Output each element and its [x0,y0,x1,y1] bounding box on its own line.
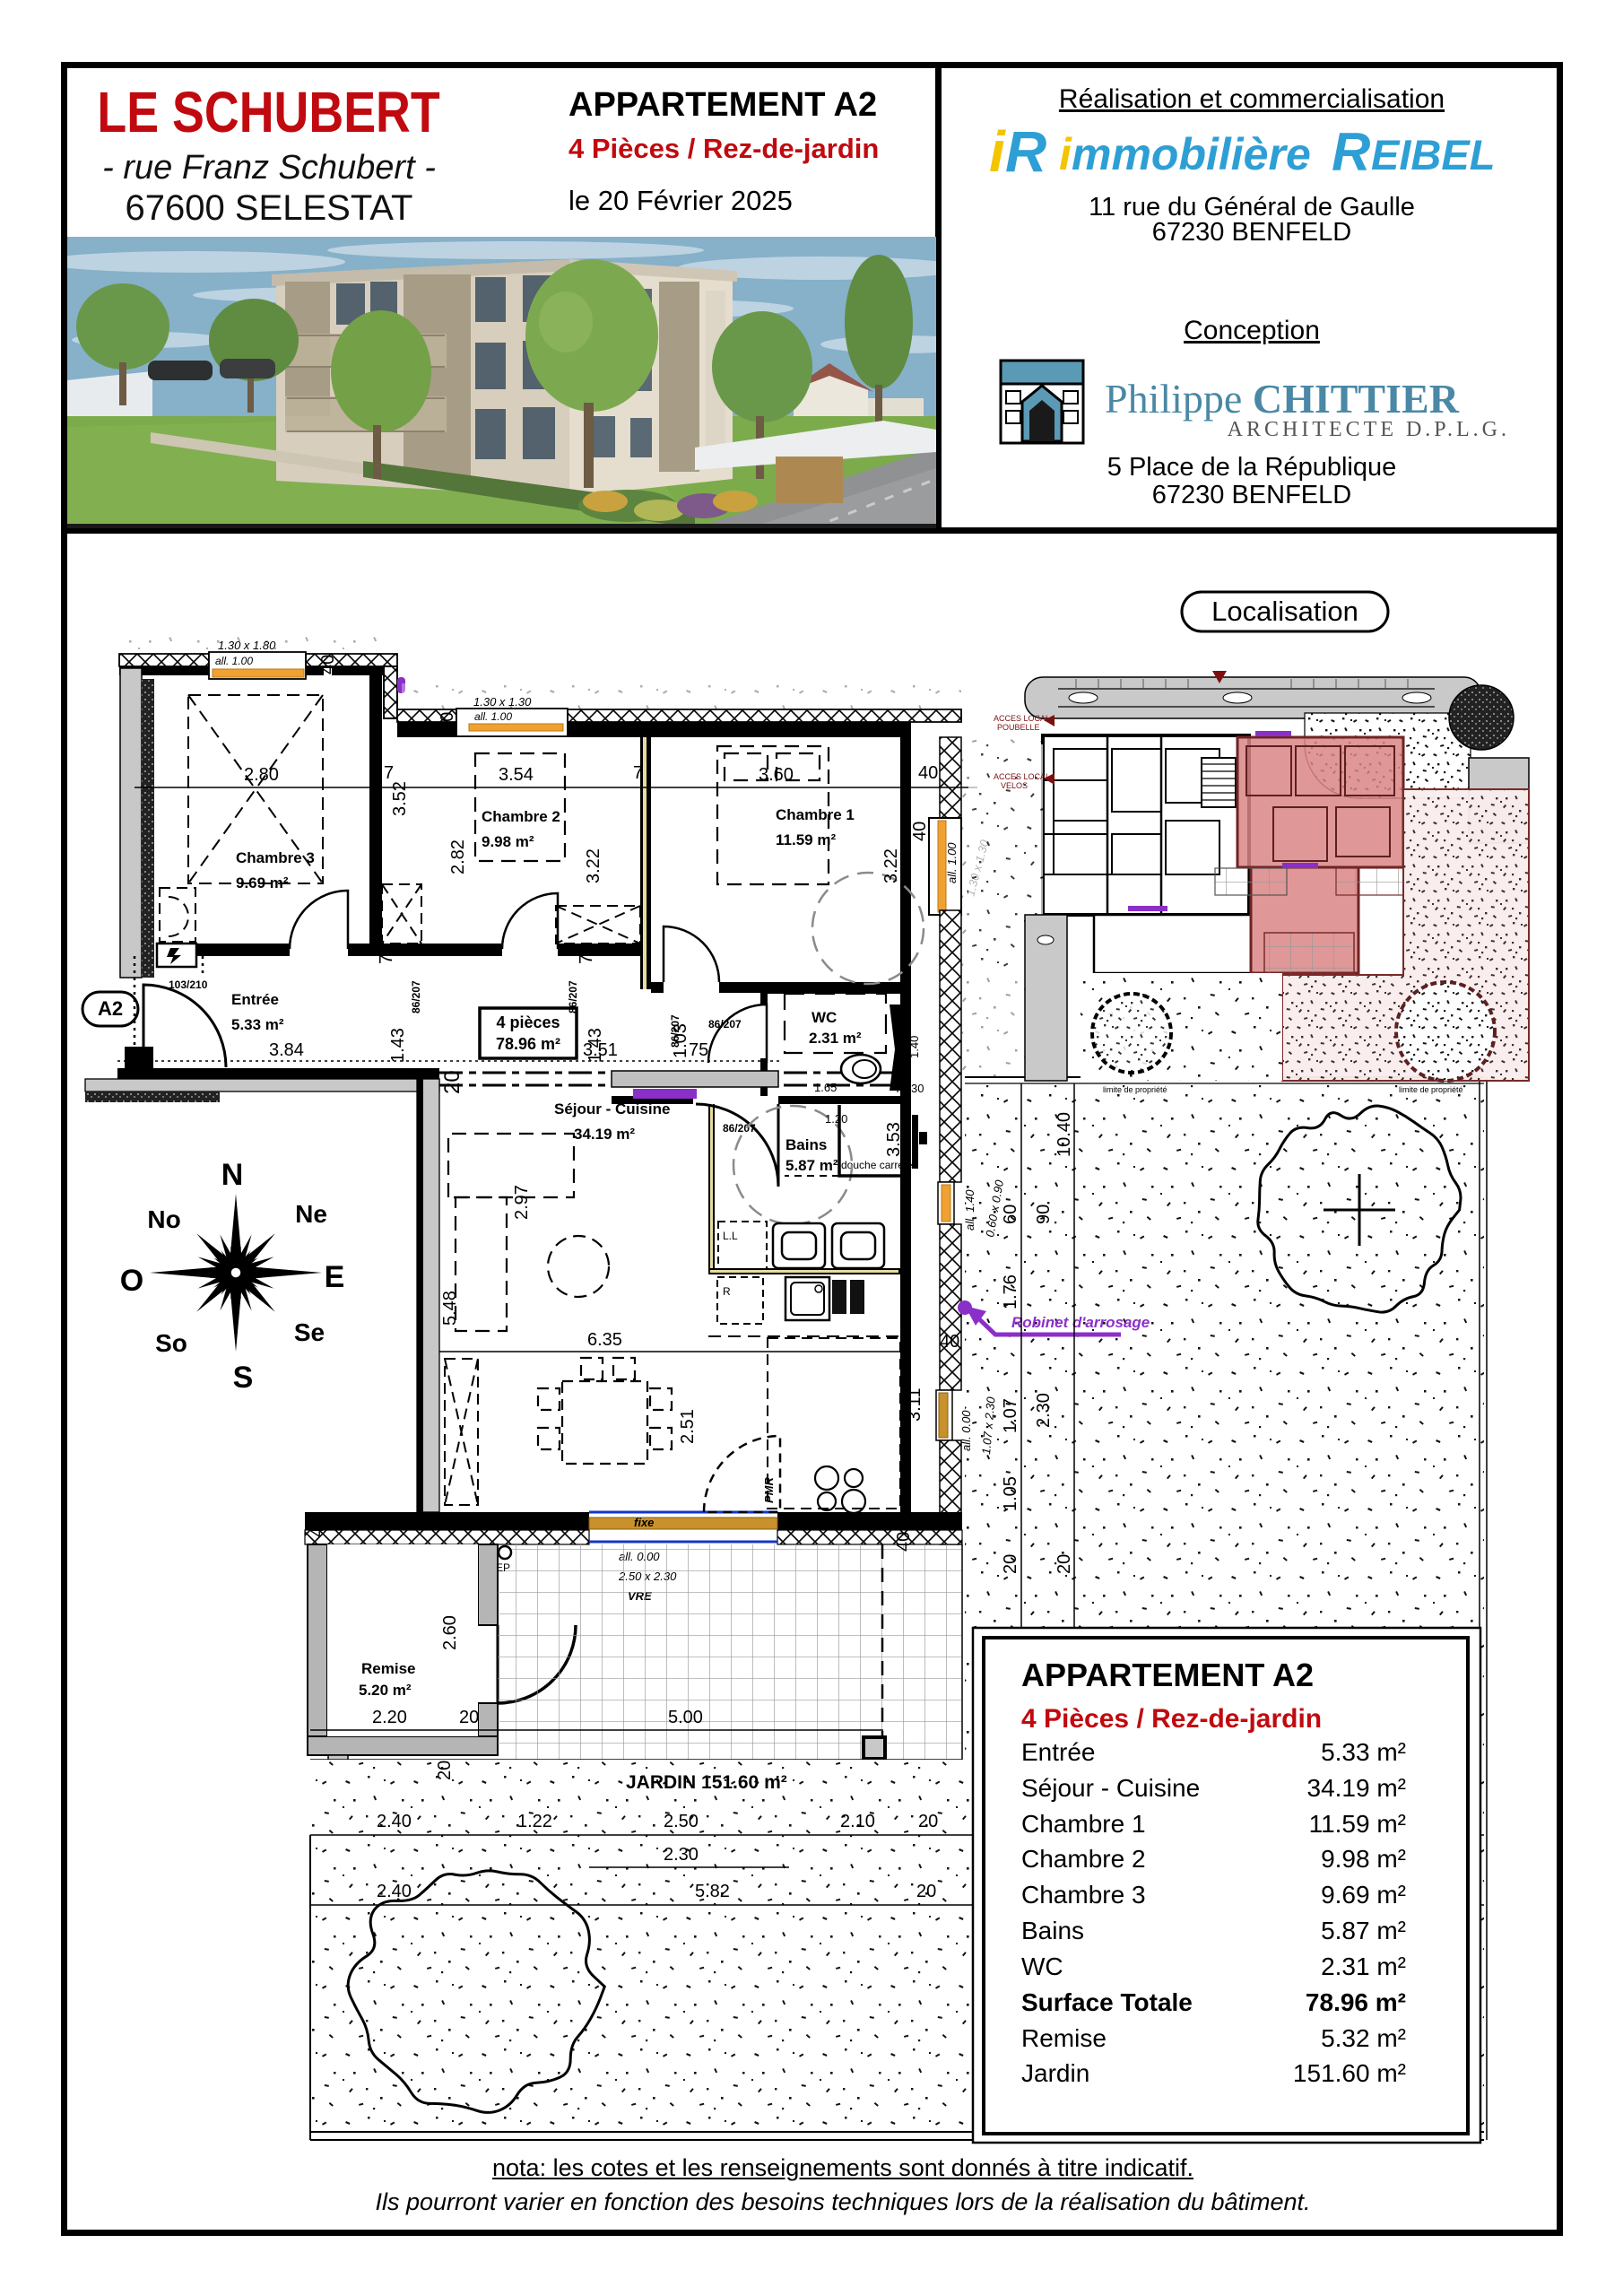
svg-text:2.31 m²: 2.31 m² [1321,1952,1406,1980]
svg-text:5.48: 5.48 [440,1291,460,1326]
svg-text:2.40: 2.40 [377,1882,412,1901]
svg-text:Remise: Remise [1021,2024,1107,2052]
svg-text:2.97: 2.97 [512,1185,532,1220]
svg-text:40: 40 [318,655,338,674]
svg-text:3.84: 3.84 [269,1040,304,1060]
svg-text:20: 20 [459,1708,479,1727]
svg-text:JARDIN 151.60 m²: JARDIN 151.60 m² [626,1772,787,1793]
svg-text:7: 7 [633,763,643,783]
svg-text:Séjour - Cuisine: Séjour - Cuisine [554,1100,670,1118]
svg-text:90: 90 [1034,1205,1054,1224]
svg-text:7: 7 [377,954,396,964]
svg-text:5.20 m²: 5.20 m² [359,1682,412,1699]
svg-text:N: N [221,1158,244,1192]
svg-text:60: 60 [1001,1205,1020,1224]
svg-text:2.51: 2.51 [678,1409,698,1444]
svg-text:86/207: 86/207 [567,980,579,1013]
svg-text:Séjour - Cuisine: Séjour - Cuisine [1021,1774,1200,1802]
svg-text:E: E [325,1260,345,1294]
svg-text:Robinet d'arrosage: Robinet d'arrosage [1011,1314,1150,1331]
svg-text:6.35: 6.35 [587,1330,622,1350]
svg-text:20: 20 [1001,1554,1020,1574]
svg-text:103/210: 103/210 [169,978,208,991]
svg-text:Chambre 1: Chambre 1 [1021,1810,1146,1838]
svg-text:3.54: 3.54 [499,765,534,785]
svg-text:Chambre 3: Chambre 3 [1021,1881,1146,1909]
svg-text:So: So [155,1329,187,1357]
svg-text:5.33 m²: 5.33 m² [1321,1738,1406,1766]
svg-text:Bains: Bains [1021,1917,1084,1944]
svg-text:Chambre 2: Chambre 2 [1021,1845,1146,1873]
svg-text:86/207: 86/207 [410,980,422,1013]
svg-text:3.52: 3.52 [390,781,410,816]
svg-text:EP: EP [496,1561,510,1574]
svg-text:all. 1.00: all. 1.00 [474,710,512,723]
svg-text:1.30 x 1.30: 1.30 x 1.30 [473,695,532,709]
svg-text:2.30: 2.30 [1034,1393,1054,1428]
svg-text:R: R [723,1285,731,1298]
svg-text:Se: Se [294,1318,325,1346]
svg-text:5.00: 5.00 [668,1708,703,1727]
svg-text:1.20: 1.20 [825,1112,847,1126]
svg-text:2.20: 2.20 [372,1708,407,1727]
svg-text:5.87 m²: 5.87 m² [1321,1917,1406,1944]
svg-text:Remise: Remise [361,1660,415,1677]
svg-text:L.L: L.L [723,1230,738,1242]
svg-text:Jardin: Jardin [1021,2059,1089,2087]
svg-text:Chambre 2: Chambre 2 [482,808,560,825]
svg-text:40: 40 [940,1332,959,1352]
svg-text:2.80: 2.80 [244,765,279,785]
svg-text:POUBELLE: POUBELLE [997,723,1040,732]
svg-text:O: O [120,1264,143,1298]
svg-text:7: 7 [384,763,394,783]
svg-text:3.53: 3.53 [884,1122,904,1157]
svg-text:Ne: Ne [295,1200,327,1228]
svg-text:fixe: fixe [634,1516,654,1529]
svg-text:Entrée: Entrée [1021,1738,1096,1766]
svg-text:1.65: 1.65 [814,1081,837,1094]
svg-text:3.22: 3.22 [584,848,603,883]
svg-text:VELOS: VELOS [1001,781,1028,790]
svg-text:1.03: 1.03 [671,1023,690,1058]
svg-text:2.31 m²: 2.31 m² [809,1030,862,1047]
svg-text:20: 20 [440,1070,464,1094]
svg-text:1.40: 1.40 [907,1036,921,1058]
svg-text:all. 0.00: all. 0.00 [959,1410,973,1451]
svg-text:Entrée: Entrée [231,991,279,1008]
svg-text:9.69 m²: 9.69 m² [1321,1881,1406,1909]
svg-text:4 pièces: 4 pièces [496,1013,560,1031]
svg-text:40: 40 [918,763,938,783]
svg-text:2.40: 2.40 [377,1812,412,1831]
svg-text:1.76: 1.76 [1001,1274,1020,1309]
svg-text:86/207: 86/207 [708,1018,742,1031]
svg-text:7: 7 [577,954,596,964]
svg-text:A2: A2 [98,997,123,1020]
svg-text:5.87 m²: 5.87 m² [785,1157,838,1174]
svg-text:APPARTEMENT A2: APPARTEMENT A2 [1021,1657,1314,1693]
svg-text:7: 7 [895,1082,901,1095]
svg-text:40: 40 [910,822,930,841]
svg-text:Chambre 1: Chambre 1 [776,806,855,823]
svg-text:1.43: 1.43 [388,1028,408,1063]
svg-text:2.50: 2.50 [664,1812,699,1831]
svg-text:9.98 m²: 9.98 m² [1321,1845,1406,1873]
svg-text:151.60 m²: 151.60 m² [1293,2059,1406,2087]
svg-text:40: 40 [894,1532,914,1552]
svg-text:20: 20 [1055,1554,1074,1574]
svg-text:2.30: 2.30 [664,1845,699,1865]
svg-text:10.40: 10.40 [1055,1112,1074,1157]
svg-text:20: 20 [918,1812,938,1831]
svg-text:40: 40 [438,712,457,732]
svg-text:Bains: Bains [785,1136,827,1153]
svg-text:all. 1.40: all. 1.40 [963,1189,976,1231]
svg-text:40: 40 [308,1518,327,1537]
svg-text:limite de propriété: limite de propriété [1399,1085,1463,1094]
svg-text:11.59 m²: 11.59 m² [1309,1810,1406,1838]
svg-text:20: 20 [435,1761,455,1780]
svg-text:3.11: 3.11 [905,1388,924,1422]
svg-text:Chambre 3: Chambre 3 [236,849,315,866]
svg-text:all. 1.00: all. 1.00 [945,842,959,883]
svg-text:78.96 m²: 78.96 m² [496,1035,560,1053]
svg-text:20: 20 [916,1882,936,1901]
svg-text:1.05: 1.05 [1001,1476,1020,1511]
svg-text:11.59 m²: 11.59 m² [776,831,836,848]
svg-text:5.32 m²: 5.32 m² [1321,2024,1406,2052]
svg-text:No: No [147,1205,180,1233]
svg-text:75: 75 [689,1040,708,1060]
svg-text:all. 1.00: all. 1.00 [215,655,253,667]
svg-text:1.22: 1.22 [517,1812,552,1831]
svg-text:5.82: 5.82 [695,1882,730,1901]
svg-text:78.96 m²: 78.96 m² [1306,1988,1406,2016]
svg-text:4 Pièces / Rez-de-jardin: 4 Pièces / Rez-de-jardin [1021,1704,1322,1734]
svg-text:2.60: 2.60 [440,1615,460,1650]
svg-text:Surface Totale: Surface Totale [1021,1988,1193,2016]
svg-text:34.19 m²: 34.19 m² [1307,1774,1407,1802]
svg-text:1.30 x 1.80: 1.30 x 1.80 [218,639,276,652]
svg-text:2.10: 2.10 [840,1812,875,1831]
svg-text:Localisation: Localisation [1211,596,1358,627]
svg-text:ACCES LOCAL: ACCES LOCAL [994,714,1050,723]
svg-text:2.82: 2.82 [448,839,468,874]
svg-text:1.07: 1.07 [1001,1398,1020,1433]
svg-text:3.60: 3.60 [759,765,794,785]
svg-text:WC: WC [811,1009,837,1026]
svg-text:3.22: 3.22 [881,848,901,883]
svg-text:5.33 m²: 5.33 m² [231,1016,284,1033]
svg-text:PMR: PMR [762,1477,776,1504]
svg-text:3.51: 3.51 [583,1040,618,1060]
svg-text:ACCES LOCAL: ACCES LOCAL [994,772,1050,781]
svg-text:WC: WC [1021,1952,1063,1980]
svg-text:30: 30 [911,1082,924,1095]
svg-text:9.98 m²: 9.98 m² [482,833,534,850]
svg-text:34.19 m²: 34.19 m² [574,1126,635,1143]
svg-text:S: S [233,1361,254,1395]
svg-text:limite de propriété: limite de propriété [1103,1085,1167,1094]
